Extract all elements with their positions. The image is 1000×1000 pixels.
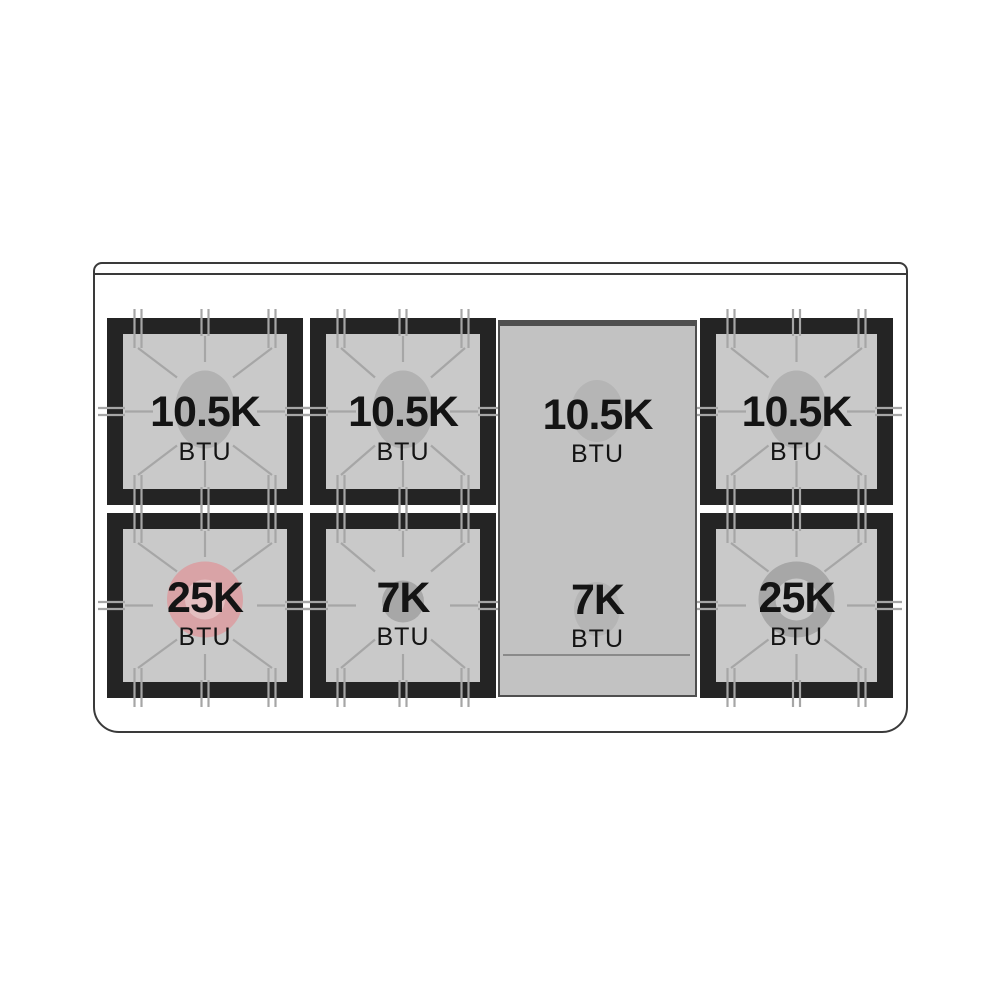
backguard-trim-line: [95, 273, 906, 275]
burner-btu-unit: BTU: [107, 438, 303, 466]
griddle-divider-line: [503, 654, 690, 656]
burner-btu-unit: BTU: [500, 625, 695, 653]
burner-btu-value: 7K: [500, 577, 695, 623]
center-griddle-plate: 10.5K BTU 7K BTU: [498, 320, 697, 697]
burner-grate-bottom-right: 25K BTU: [700, 513, 893, 698]
burner-grate-bottom-center: 7K BTU: [310, 513, 496, 698]
burner-btu-value: 10.5K: [500, 392, 695, 438]
burner-btu-value: 25K: [107, 575, 303, 621]
burner-btu-value: 10.5K: [700, 389, 893, 435]
burner-btu-value: 10.5K: [107, 389, 303, 435]
burner-btu-unit: BTU: [700, 623, 893, 651]
burner-btu-unit: BTU: [310, 623, 496, 651]
burner-btu-value: 7K: [310, 575, 496, 621]
burner-grate-top-right: 10.5K BTU: [700, 318, 893, 505]
burner-btu-value: 10.5K: [310, 389, 496, 435]
burner-btu-unit: BTU: [107, 623, 303, 651]
burner-btu-value: 25K: [700, 575, 893, 621]
burner-grate-top-left: 10.5K BTU: [107, 318, 303, 505]
burner-grate-top-center: 10.5K BTU: [310, 318, 496, 505]
burner-btu-unit: BTU: [500, 440, 695, 468]
burner-btu-unit: BTU: [700, 438, 893, 466]
burner-grate-bottom-left: 25K BTU: [107, 513, 303, 698]
burner-btu-unit: BTU: [310, 438, 496, 466]
cooktop-diagram: 10.5K BTU 10.5K BTU 10.5K BTU 25K BTU 7: [0, 0, 1000, 1000]
